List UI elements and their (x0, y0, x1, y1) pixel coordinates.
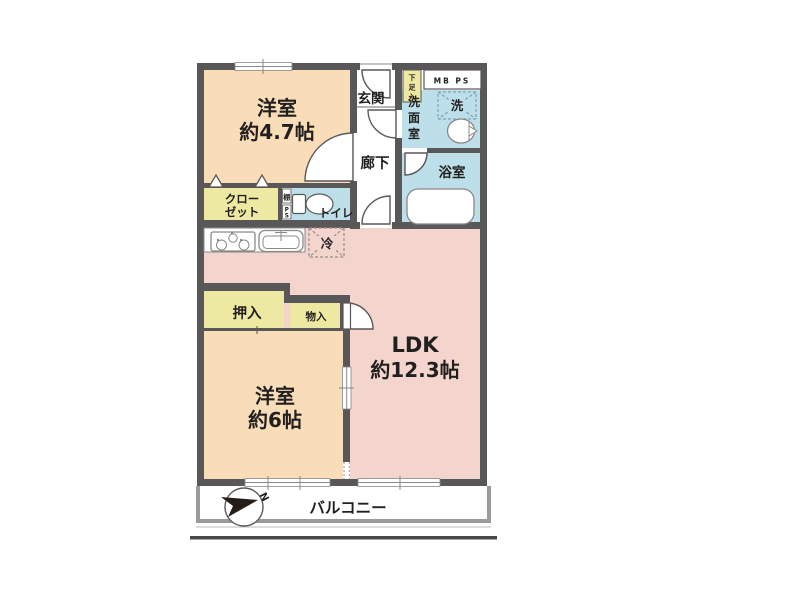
open-wall-dotted (343, 462, 350, 479)
bathroom-label: 浴室 (439, 164, 466, 181)
storage-box-label: 物入 (306, 310, 327, 323)
shelf-label: 棚 (283, 193, 290, 202)
ground-line (190, 536, 497, 540)
meter-box-label: MB PS (434, 77, 471, 86)
washroom-char2: 面 (408, 111, 420, 125)
western-room-6-door-leaf (343, 303, 351, 329)
western-room-6-name: 洋室 (255, 384, 295, 408)
toilet-label: トイレ (319, 206, 354, 220)
western-room-6-size: 約6帖 (248, 408, 302, 432)
hallway-label: 廊下 (361, 154, 390, 172)
ldk-size: 約12.3帖 (370, 358, 459, 382)
shoe-cabinet-char1: 下 (409, 74, 416, 82)
sink-icon (259, 231, 303, 252)
washroom-char1: 洗 (408, 94, 420, 109)
closet-label-line1: クロー (225, 192, 260, 206)
entrance-label: 玄関 (358, 90, 385, 107)
ldk-name: LDK (391, 333, 439, 357)
bathtub-icon (407, 189, 474, 224)
western-room-47-size: 約4.7帖 (239, 120, 314, 144)
closet-label-line2: ゼット (225, 205, 260, 219)
stove-icon (211, 232, 255, 251)
washer-space-label: 洗 (451, 98, 464, 113)
floor-plan: 洋室 約4.7帖 クロー ゼット トイレ 棚 P S 玄関 廊下 下 足 入 M… (0, 0, 799, 600)
floor-plan-canvas: 洋室 約4.7帖 クロー ゼット トイレ 棚 P S 玄関 廊下 下 足 入 M… (0, 0, 799, 600)
balcony-label: バルコニー (309, 499, 386, 517)
pipe-space-s: S (285, 214, 289, 220)
western-room-47-name: 洋室 (257, 96, 297, 120)
kitchen-counter (204, 228, 305, 252)
washroom-char3: 室 (408, 126, 420, 141)
futon-closet-label: 押入 (233, 304, 262, 322)
shoe-cabinet-char2: 足 (409, 84, 417, 92)
fridge-space-label: 冷 (321, 236, 334, 251)
